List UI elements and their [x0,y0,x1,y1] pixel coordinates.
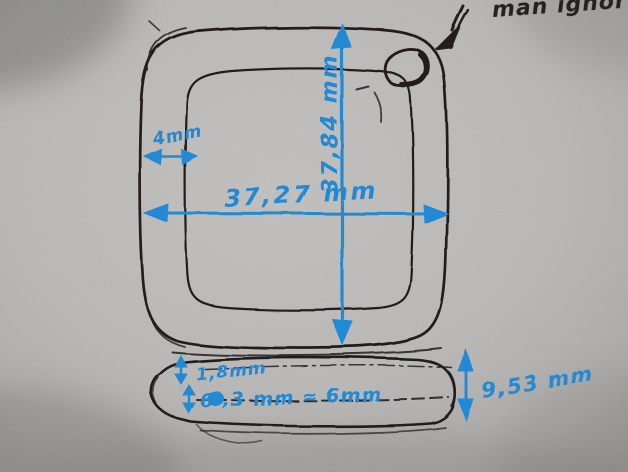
sketch-photo: 37,27 mm 37,84 mm 4mm 1,8mm 6 ,3 mm ≈ 6m… [0,0,628,472]
sketch-canvas: 37,27 mm 37,84 mm 4mm 1,8mm 6 ,3 mm ≈ 6m… [0,0,628,472]
dim-height-label: 37,84 mm [318,54,343,193]
dim-thickness-label-prefix: 6 [200,390,214,412]
